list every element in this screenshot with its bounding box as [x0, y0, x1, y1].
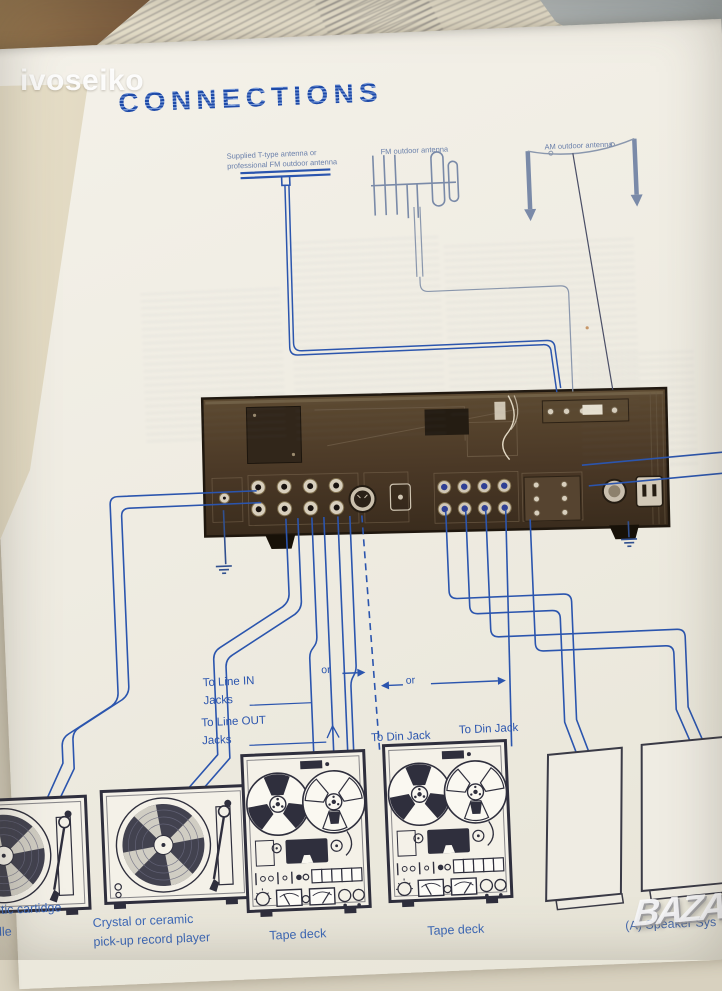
t-type-antenna-illustration [240, 169, 331, 187]
manual-page: CONNECTIONS Supplied T-type antenna or p… [0, 19, 722, 989]
turntable-2-illustration [101, 786, 250, 910]
din-socket [349, 486, 376, 513]
or-label-2: or [406, 674, 416, 686]
speaker-a-illustration [540, 748, 629, 910]
ground-symbol-left [216, 566, 232, 574]
turntable-2-caption: Crystal or ceramic pick-up record player [92, 909, 210, 951]
speaker-b-illustration [635, 734, 722, 900]
or-label-1: or [321, 664, 331, 676]
showthrough-text [288, 236, 446, 442]
tape-deck-2-illustration [383, 741, 512, 908]
tape-deck-1-caption: Tape deck [269, 924, 327, 945]
din-jack-label-1: To Din Jack [371, 728, 431, 748]
speaker-terminal-strip [524, 476, 581, 521]
showthrough-text [140, 288, 286, 444]
line-in-label: To Line IN Jacks [202, 673, 255, 711]
tape-deck-2-caption: Tape deck [427, 920, 485, 941]
or-arrow-2 [381, 677, 506, 690]
watermark-ivoseiko: ivoseiko [20, 64, 144, 98]
ground-symbol-right [621, 539, 637, 547]
photo-scene: CONNECTIONS Supplied T-type antenna or p… [0, 0, 722, 960]
line-out-label: To Line OUT Jacks [201, 713, 267, 751]
dashed-din-wire [362, 515, 380, 752]
showthrough-text [578, 350, 698, 470]
turntable-1-caption: etic cartidge dle [0, 897, 63, 944]
din-jack-label-2: To Din Jack [459, 720, 519, 740]
tape-deck-1-illustration [242, 751, 371, 918]
